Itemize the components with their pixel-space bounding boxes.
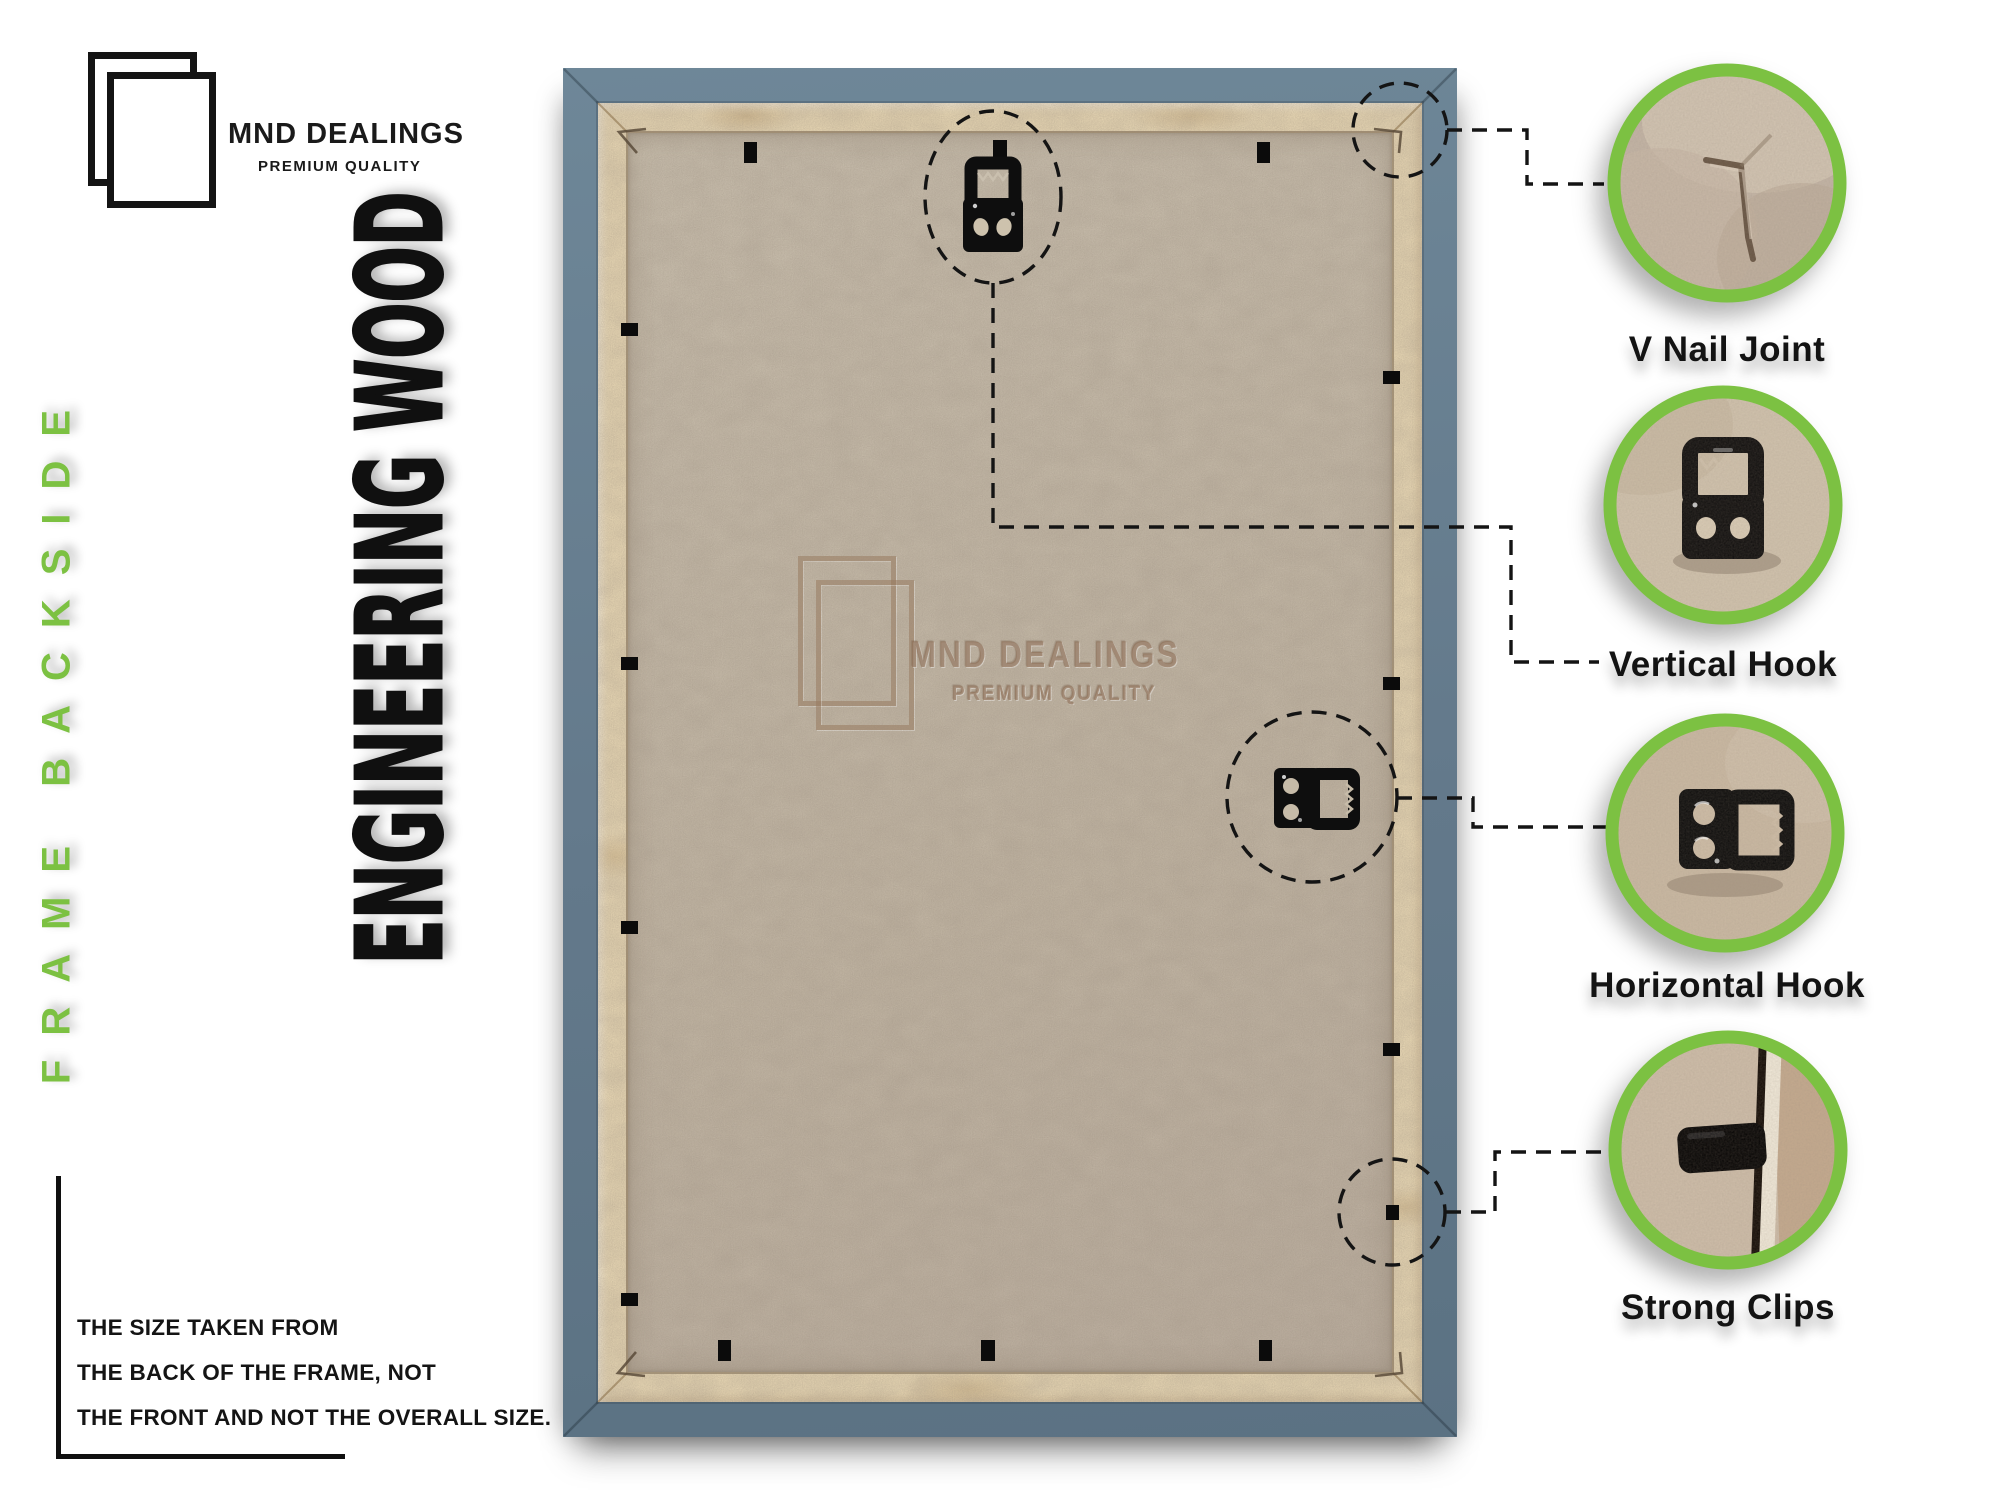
product-infographic: MND DEALINGS PREMIUM QUALITY FRAME BACKS…	[0, 0, 2000, 1500]
watermark-brand-name: MND DEALINGS	[910, 634, 1180, 676]
size-note-line: THE FRONT AND NOT THE OVERALL SIZE.	[77, 1395, 345, 1440]
mdf-back-panel	[626, 131, 1394, 1374]
strong-clips-leader	[1446, 1152, 1605, 1212]
brand-name: MND DEALINGS	[228, 118, 464, 151]
frame-outer-moulding	[563, 68, 1457, 1437]
size-note-line: THE SIZE TAKEN FROM	[77, 1305, 345, 1350]
callout-label-strong-clips: Strong Clips	[1568, 1288, 1888, 1328]
frame-backside-label: FRAME BACKSIDE	[35, 386, 80, 1084]
strong-clips-photo	[1608, 1030, 1848, 1270]
logo-frame-icon-front	[107, 72, 216, 208]
callout-label-vertical-hook: Vertical Hook	[1563, 645, 1883, 685]
brand-tagline: PREMIUM QUALITY	[258, 158, 421, 175]
callout-label-horizontal-hook: Horizontal Hook	[1567, 966, 1887, 1006]
size-note: THE SIZE TAKEN FROM THE BACK OF THE FRAM…	[56, 1176, 345, 1459]
callout-label-v-nail-joint: V Nail Joint	[1567, 330, 1887, 370]
v-nail-joint-leader	[1447, 130, 1604, 184]
watermark-frame-icon-front	[816, 580, 914, 730]
watermark-tagline: PREMIUM QUALITY	[952, 682, 1156, 706]
horizontal-hook-photo	[1605, 713, 1845, 953]
size-note-line: THE BACK OF THE FRAME, NOT	[77, 1350, 345, 1395]
vertical-hook-photo	[1603, 385, 1843, 625]
engineering-wood-label: ENGINEERING WOOD	[331, 192, 469, 965]
v-nail-joint-photo	[1607, 63, 1847, 303]
